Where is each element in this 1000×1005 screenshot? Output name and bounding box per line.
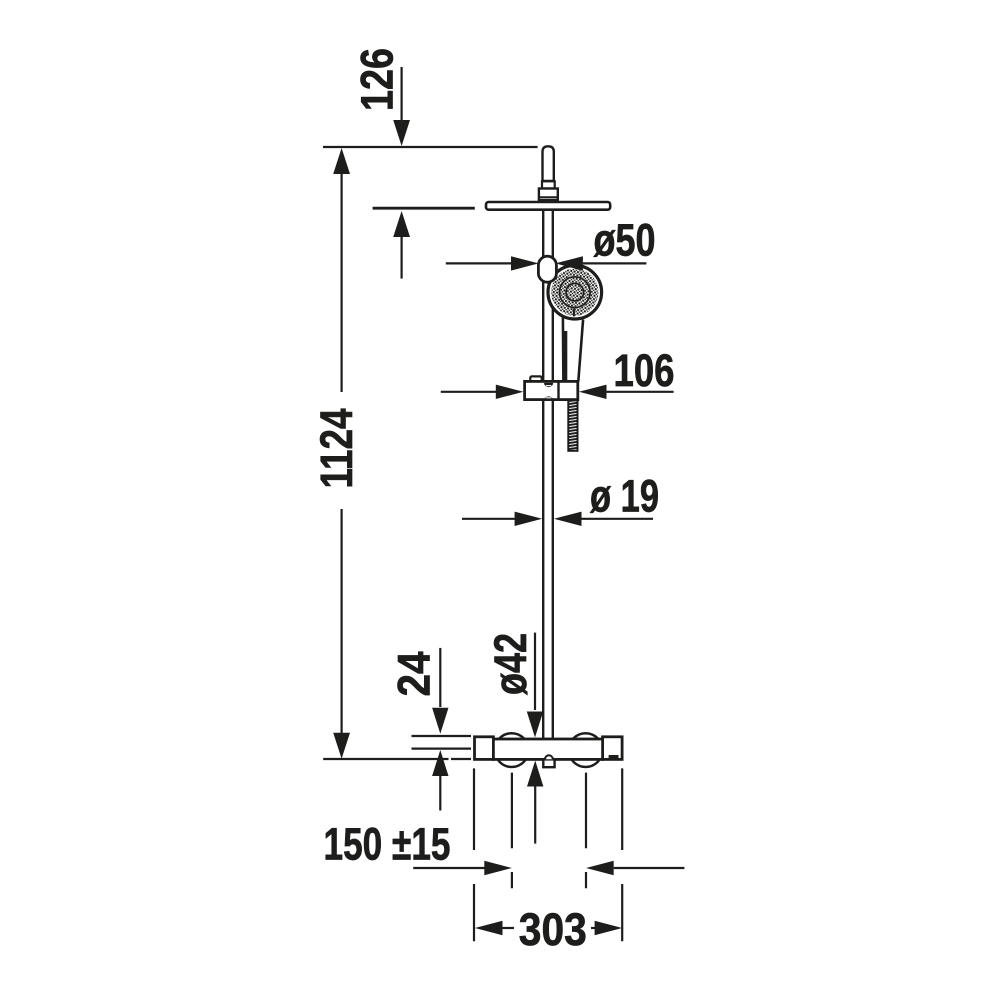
svg-text:106: 106 [614,345,675,396]
svg-text:ø42: ø42 [485,633,536,695]
svg-text:ø 19: ø 19 [590,470,659,521]
svg-text:ø50: ø50 [594,215,656,266]
svg-text:1124: 1124 [311,409,362,489]
svg-text:24: 24 [389,652,440,697]
svg-text:303: 303 [519,904,587,955]
svg-text:126: 126 [352,48,403,111]
svg-text:150 ±15: 150 ±15 [324,818,451,869]
